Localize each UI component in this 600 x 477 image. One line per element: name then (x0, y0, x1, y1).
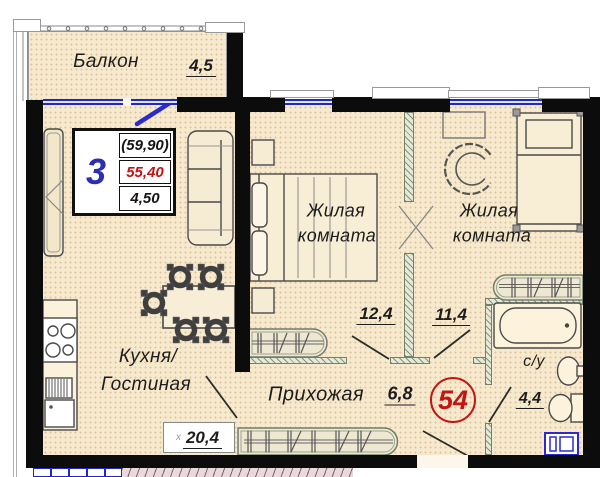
sill-top-left (13, 19, 41, 32)
lower-unit-hatch (122, 468, 353, 477)
bedroom1-label-line2: комната (298, 226, 376, 247)
kitchen-label-line2: Гостиная (101, 374, 191, 396)
sill-ledge-2 (538, 87, 590, 99)
bedroom1-label-line1: Жилая (307, 201, 365, 222)
info-stamp: 3 (59,90) 55,40 4,50 (72, 128, 176, 216)
wall-kitchen-bedroom (235, 97, 250, 372)
building-edge-line (13, 32, 17, 477)
kitchen-area-mark: х (176, 432, 181, 443)
bathroom-label: с/у (523, 353, 545, 371)
partition-bathroom-left-upper (485, 305, 492, 385)
window-bedroom1 (285, 99, 332, 105)
partition-bathroom-left-lower (485, 423, 492, 455)
window-balcony-left (43, 99, 123, 105)
kitchen-label-line1: Кухня/ (119, 346, 177, 368)
sill-window2 (448, 90, 544, 98)
wall-left (26, 100, 43, 468)
bedroom2-label-line1: Жилая (460, 201, 518, 222)
sill-ledge-1 (372, 87, 450, 99)
wall-top-b (332, 97, 450, 112)
stamp-rooms-count: 3 (75, 131, 117, 213)
hallway-label: Прихожая (268, 384, 364, 407)
balcony-door-gap (123, 98, 131, 106)
partition-bathroom-top (485, 298, 583, 305)
wall-bottom-a (26, 455, 417, 468)
lower-unit-window (33, 468, 122, 477)
floor-plan: 3 (59,90) 55,40 4,50 Балкон 4,5 Жилая ко… (0, 0, 600, 477)
apartment-number-badge: 54 (430, 377, 476, 423)
bedroom2-area: 11,4 (432, 305, 470, 325)
kitchen-area: 20,4 (183, 428, 222, 448)
partition-bedroom2-hall-left (390, 357, 430, 364)
window-balcony-right (131, 99, 177, 105)
wall-right (583, 97, 600, 468)
partition-bedroom1-hall (248, 357, 347, 364)
entrance-door-gap (417, 455, 468, 468)
wall-bottom-b (468, 455, 600, 468)
sill-window1 (270, 90, 334, 98)
balcony-area: 4,5 (186, 56, 216, 76)
wall-balcony-right (227, 30, 243, 100)
stamp-values: (59,90) 55,40 4,50 (117, 131, 173, 213)
partition-bedrooms-upper (404, 112, 414, 202)
apartment-number: 54 (438, 385, 468, 416)
partition-bedrooms-lower (404, 253, 414, 357)
stamp-value-top: (59,90) (119, 133, 171, 158)
bedroom2-label-line2: комната (453, 226, 531, 247)
bedroom1-area: 12,4 (356, 304, 395, 324)
balcony-label: Балкон (73, 51, 139, 73)
hallway-area: 6,8 (384, 384, 415, 405)
sill-balcony (205, 22, 245, 33)
bathroom-area: 4,4 (516, 390, 544, 408)
window-bedroom2 (450, 99, 542, 105)
stamp-value-middle: 55,40 (119, 160, 171, 185)
kitchen-area-box: х 20,4 (163, 422, 235, 453)
stamp-value-bottom: 4,50 (119, 186, 171, 211)
